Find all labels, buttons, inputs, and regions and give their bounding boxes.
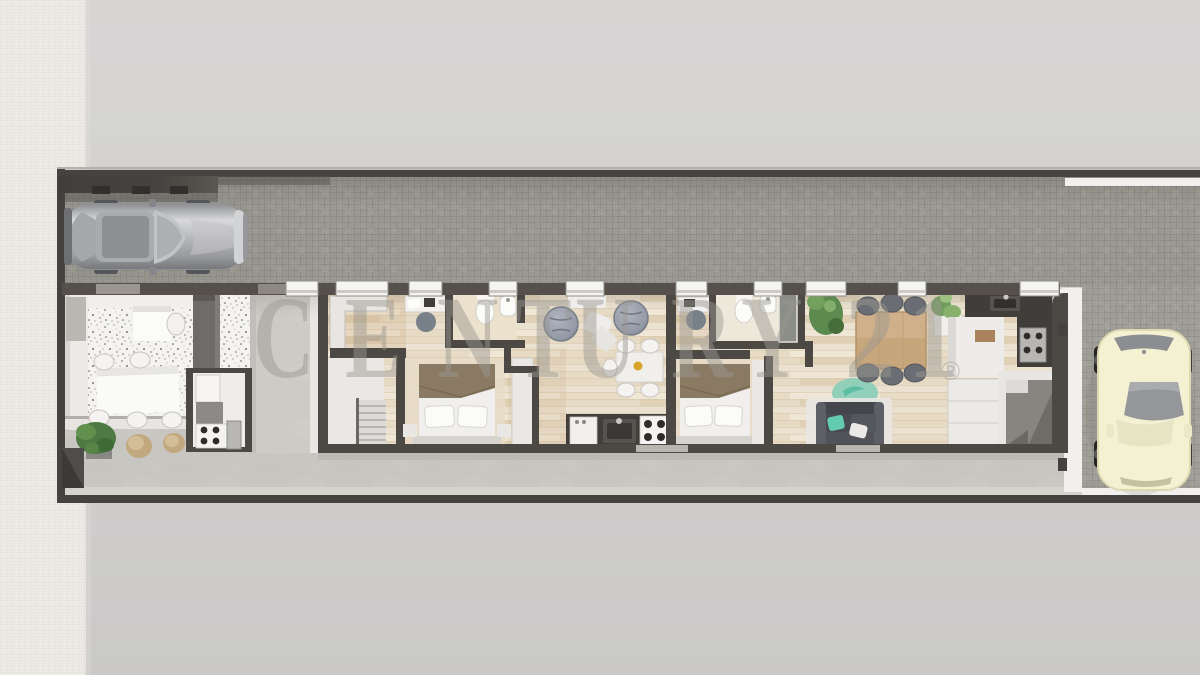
svg-text:E: E [345, 273, 402, 404]
svg-text:C: C [253, 273, 314, 404]
svg-text:®: ® [941, 356, 960, 386]
svg-text:Y: Y [741, 273, 802, 404]
svg-text:T: T [515, 273, 572, 404]
svg-text:U: U [575, 273, 636, 404]
svg-text:2: 2 [845, 271, 895, 402]
svg-text:N: N [437, 273, 498, 404]
svg-text:R: R [671, 273, 734, 404]
